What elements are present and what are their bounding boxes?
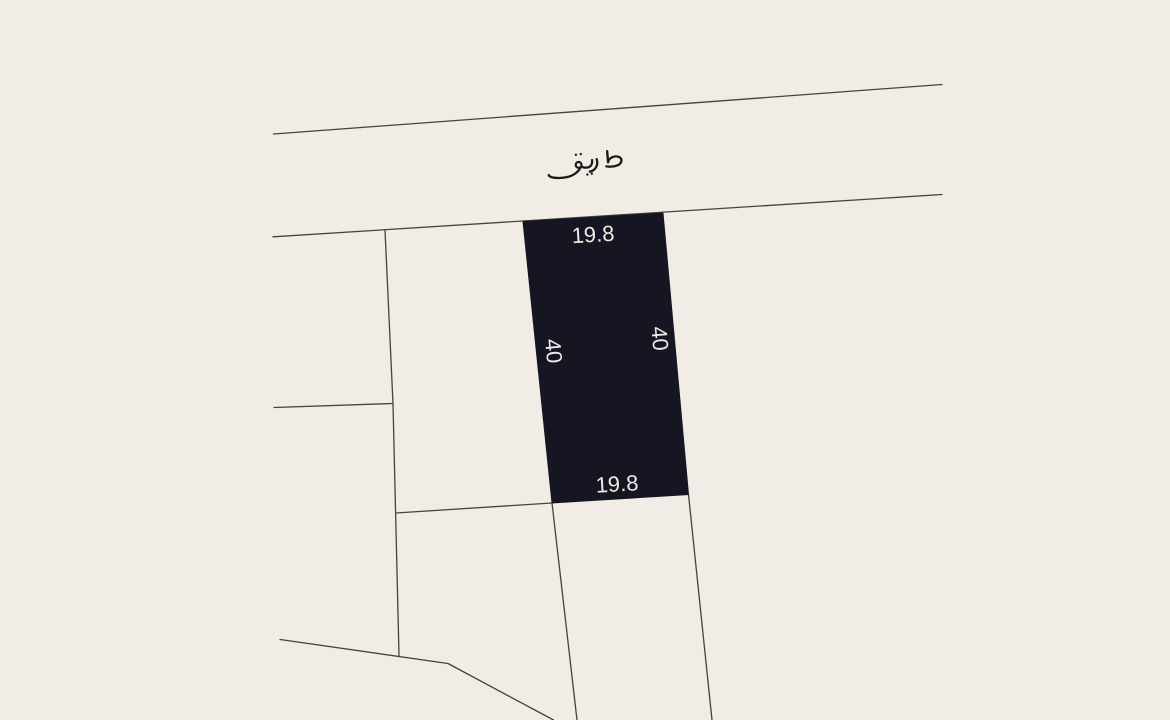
svg-text:19.8: 19.8 <box>571 221 615 249</box>
svg-text:40: 40 <box>540 338 567 365</box>
svg-text:19.8: 19.8 <box>595 470 639 498</box>
svg-text:40: 40 <box>646 325 673 352</box>
